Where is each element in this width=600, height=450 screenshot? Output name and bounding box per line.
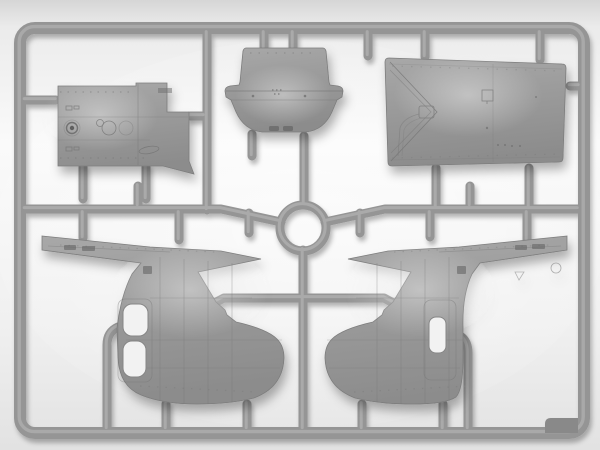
corner-gate-tab (545, 418, 578, 433)
fuselage-right-sheen (345, 242, 495, 338)
floor-panel-dark-dash (158, 88, 172, 93)
fuselage-left-window-upper (123, 304, 148, 336)
fuselage-right-window (429, 317, 446, 353)
sprue-photo (0, 0, 600, 450)
part-nose-cowling (225, 48, 343, 132)
sprue-photo-canvas (0, 0, 600, 450)
nose-cowling-sheen (235, 65, 331, 125)
part-roof-panel (385, 53, 566, 166)
roof-panel-sheen (393, 53, 543, 137)
fuselage-left-window-lower (123, 341, 146, 377)
floor-panel-fitting-pin (70, 126, 74, 130)
